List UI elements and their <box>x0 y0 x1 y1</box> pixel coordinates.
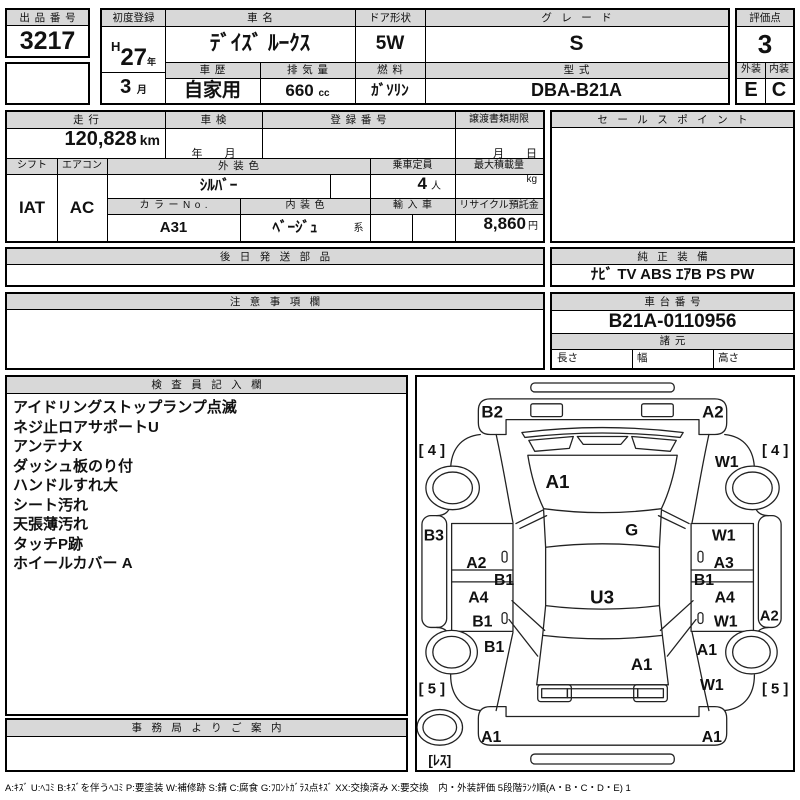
damage-label: W1 <box>700 677 724 694</box>
caution-label: 注意事項欄 <box>7 294 543 310</box>
spec-width-label: 幅 <box>632 349 713 368</box>
door-handle <box>502 613 507 624</box>
vehicle-header-table: 初度登録 H27年 3 月 車名 ﾃﾞｲｽﾞ ﾙｰｸｽ 車歴 自家用 排気量 6… <box>100 8 730 105</box>
inspector-note-line: アイドリングストップランプ点滅 <box>13 398 403 418</box>
color-no-label: カラーNo. <box>107 198 240 214</box>
damage-label: A4 <box>468 590 488 607</box>
auction-no-value: 3217 <box>7 26 88 56</box>
recycle-label: リサイクル預託金 <box>455 198 543 214</box>
inspector-note-line: ダッシュ板のり付 <box>13 457 403 477</box>
damage-label: A2 <box>702 403 724 422</box>
ext-color-value: ｼﾙﾊﾞｰ <box>107 174 330 198</box>
damage-label: A4 <box>715 590 735 607</box>
door-handle <box>502 551 507 562</box>
chassis-no: B21A-0110956 <box>552 310 793 333</box>
rear-right-quarter <box>725 675 755 711</box>
interior-label: 内装 <box>765 62 793 78</box>
rear-left-quarter <box>451 675 481 711</box>
inspector-notes: アイドリングストップランプ点滅 ネジ止ロアサポートU アンテナX ダッシュ板のり… <box>13 398 403 574</box>
door-handle <box>698 613 703 624</box>
tire-grade-label: [ 4 ] <box>762 443 788 459</box>
inspector-note-line: シート汚れ <box>13 496 403 516</box>
mileage-value: 120,828km <box>7 128 165 158</box>
spec-height-label: 高さ <box>713 349 793 368</box>
score-value: 3 <box>737 26 793 62</box>
aircon-label: エアコン <box>57 158 107 174</box>
front-left-fender <box>451 434 481 470</box>
import-label: 輸入車 <box>370 198 455 214</box>
ext-color-label: 外装色 <box>107 158 370 174</box>
aircon-value: AC <box>57 174 107 241</box>
shift-label: シフト <box>7 158 57 174</box>
model-label: 型式 <box>425 62 728 78</box>
exterior-grade: E <box>737 78 765 103</box>
score-box: 評価点 3 外装 内装 E C <box>735 8 795 105</box>
windshield-outline <box>544 511 662 548</box>
damage-label: A1 <box>545 471 569 492</box>
front-top-bar <box>531 383 674 392</box>
chassis-label: 車台番号 <box>552 294 793 310</box>
color-no-value: A31 <box>107 214 240 241</box>
equipment-label: 純正装備 <box>552 249 793 265</box>
tire-grade-label: [ 5 ] <box>419 682 445 698</box>
car-damage-diagram: B2 A2 [ 4 ] [ 4 ] W1 A1 G B3 W1 A2 A3 B1… <box>417 377 793 770</box>
car-name-value: ﾃﾞｲｽﾞ ﾙｰｸｽ <box>165 26 355 62</box>
rear-window-outline <box>543 606 663 639</box>
sales-point-label: セールスポイント <box>552 112 793 128</box>
office-label: 事務局よりご案内 <box>7 720 406 737</box>
front-bumper <box>478 399 726 435</box>
damage-label: B3 <box>424 527 444 544</box>
interior-grade: C <box>765 78 793 103</box>
damage-label: W1 <box>714 613 738 630</box>
tire-grade-label: [ 4 ] <box>419 443 445 459</box>
fuel-value: ｶﾞｿﾘﾝ <box>355 78 425 103</box>
damage-label: A2 <box>760 609 779 625</box>
damage-label: W1 <box>712 527 736 544</box>
spec-length-label: 長さ <box>552 349 632 368</box>
first-reg-year: H27年 <box>102 27 165 72</box>
shift-value: IAT <box>7 174 57 241</box>
spare-tire-label: [ﾚｽ] <box>428 752 451 768</box>
damage-diagram-box: B2 A2 [ 4 ] [ 4 ] W1 A1 G B3 W1 A2 A3 B1… <box>415 375 795 772</box>
later-parts-box: 後日発送部品 <box>5 247 545 287</box>
first-reg-era: H <box>111 39 120 54</box>
damage-label: A2 <box>466 555 486 572</box>
auction-no-empty-box <box>5 62 90 105</box>
inspector-box: 検査員記入欄 アイドリングストップランプ点滅 ネジ止ロアサポートU アンテナX … <box>5 375 408 716</box>
office-box: 事務局よりご案内 <box>5 718 408 772</box>
capacity-label: 乗車定員 <box>370 158 455 174</box>
damage-label: G <box>625 520 638 539</box>
displacement-label: 排気量 <box>260 62 355 78</box>
first-reg-label: 初度登録 <box>102 10 165 26</box>
auction-sheet: 出品番号 3217 初度登録 H27年 3 月 車名 ﾃﾞｲｽﾞ ﾙｰｸｽ 車歴… <box>0 0 800 800</box>
inspector-note-line: 天張薄汚れ <box>13 515 403 535</box>
auction-no-box: 出品番号 3217 <box>5 8 90 58</box>
damage-label: B1 <box>494 572 514 589</box>
equipment-box: 純正装備 ﾅﾋﾞ TV ABS ｴｱB PS PW <box>550 247 795 287</box>
mileage-label: 走行 <box>7 112 165 128</box>
int-color-value: ﾍﾞｰｼﾞｭ <box>240 214 350 241</box>
wiper-right <box>632 436 677 451</box>
door-label: ドア形状 <box>355 10 425 26</box>
damage-label: A1 <box>631 655 653 674</box>
damage-label: W1 <box>715 454 739 471</box>
load-label: 最大積載量 <box>455 158 543 174</box>
damage-label: A1 <box>481 729 501 746</box>
inspector-note-line: アンテナX <box>13 437 403 457</box>
exterior-label: 外装 <box>737 62 765 78</box>
damage-label: U3 <box>590 587 614 608</box>
condition-table: 走行 120,828km 車検 年 月 登録番号 譲渡書類期限 月 日 シフト … <box>5 110 545 243</box>
damage-label: B1 <box>484 639 504 656</box>
damage-label: A1 <box>702 729 722 746</box>
damage-label: B1 <box>472 613 492 630</box>
tire-grade-label: [ 5 ] <box>762 682 788 698</box>
int-color-suffix: 系 <box>347 214 370 243</box>
auction-no-label: 出品番号 <box>7 10 88 26</box>
sales-point-box: セールスポイント <box>550 110 795 243</box>
damage-label: A1 <box>697 642 717 659</box>
specs-label: 諸元 <box>552 333 793 349</box>
first-reg-year-unit: 年 <box>147 57 156 67</box>
inspector-note-line: ハンドルすれ大 <box>13 476 403 496</box>
int-color-label: 内装色 <box>240 198 370 214</box>
displacement-value: 660 cc <box>260 78 355 106</box>
capacity-value: 4人 <box>370 174 455 198</box>
damage-label: A3 <box>714 555 734 572</box>
score-label: 評価点 <box>737 10 793 26</box>
inspector-label: 検査員記入欄 <box>7 377 406 394</box>
later-parts-label: 後日発送部品 <box>7 249 543 265</box>
rear-bottom-bar <box>531 754 674 764</box>
recycle-value: 8,860円 <box>455 214 543 241</box>
inspection-label: 車検 <box>165 112 262 128</box>
grade-label: グレード <box>425 10 728 26</box>
history-label: 車歴 <box>165 62 260 78</box>
door-handle <box>698 551 703 562</box>
damage-label: B1 <box>694 572 714 589</box>
caution-box: 注意事項欄 <box>5 292 545 370</box>
damage-label: B2 <box>481 403 503 422</box>
rear-bumper <box>478 707 726 746</box>
fuel-label: 燃料 <box>355 62 425 78</box>
legend-text: A:ｷｽﾞ U:ﾍｺﾐ B:ｷｽﾞを伴うﾍｺﾐ P:要塗装 W:補修跡 S:錆 … <box>5 780 797 794</box>
inspection-placeholder: 年 月 <box>165 128 262 158</box>
history-value: 自家用 <box>165 78 260 103</box>
deadline-placeholder: 月 日 <box>455 128 543 158</box>
inspector-note-line: タッチP跡 <box>13 535 403 555</box>
model-value: DBA-B21A <box>425 78 728 103</box>
wiper-left <box>529 436 574 451</box>
equipment-value: ﾅﾋﾞ TV ABS ｴｱB PS PW <box>552 265 793 285</box>
deadline-label: 譲渡書類期限 <box>455 112 543 128</box>
load-value: kg <box>455 174 543 198</box>
grade-value: S <box>425 26 728 62</box>
reg-no-label: 登録番号 <box>262 112 455 128</box>
chassis-box: 車台番号 諸元 B21A-0110956 長さ 幅 高さ <box>550 292 795 370</box>
inspector-note-line: ホイールカバー A <box>13 554 403 574</box>
door-value: 5W <box>355 26 425 62</box>
car-name-label: 車名 <box>165 10 355 26</box>
first-reg-month: 3 月 <box>102 72 165 103</box>
inspector-note-line: ネジ止ロアサポートU <box>13 418 403 438</box>
